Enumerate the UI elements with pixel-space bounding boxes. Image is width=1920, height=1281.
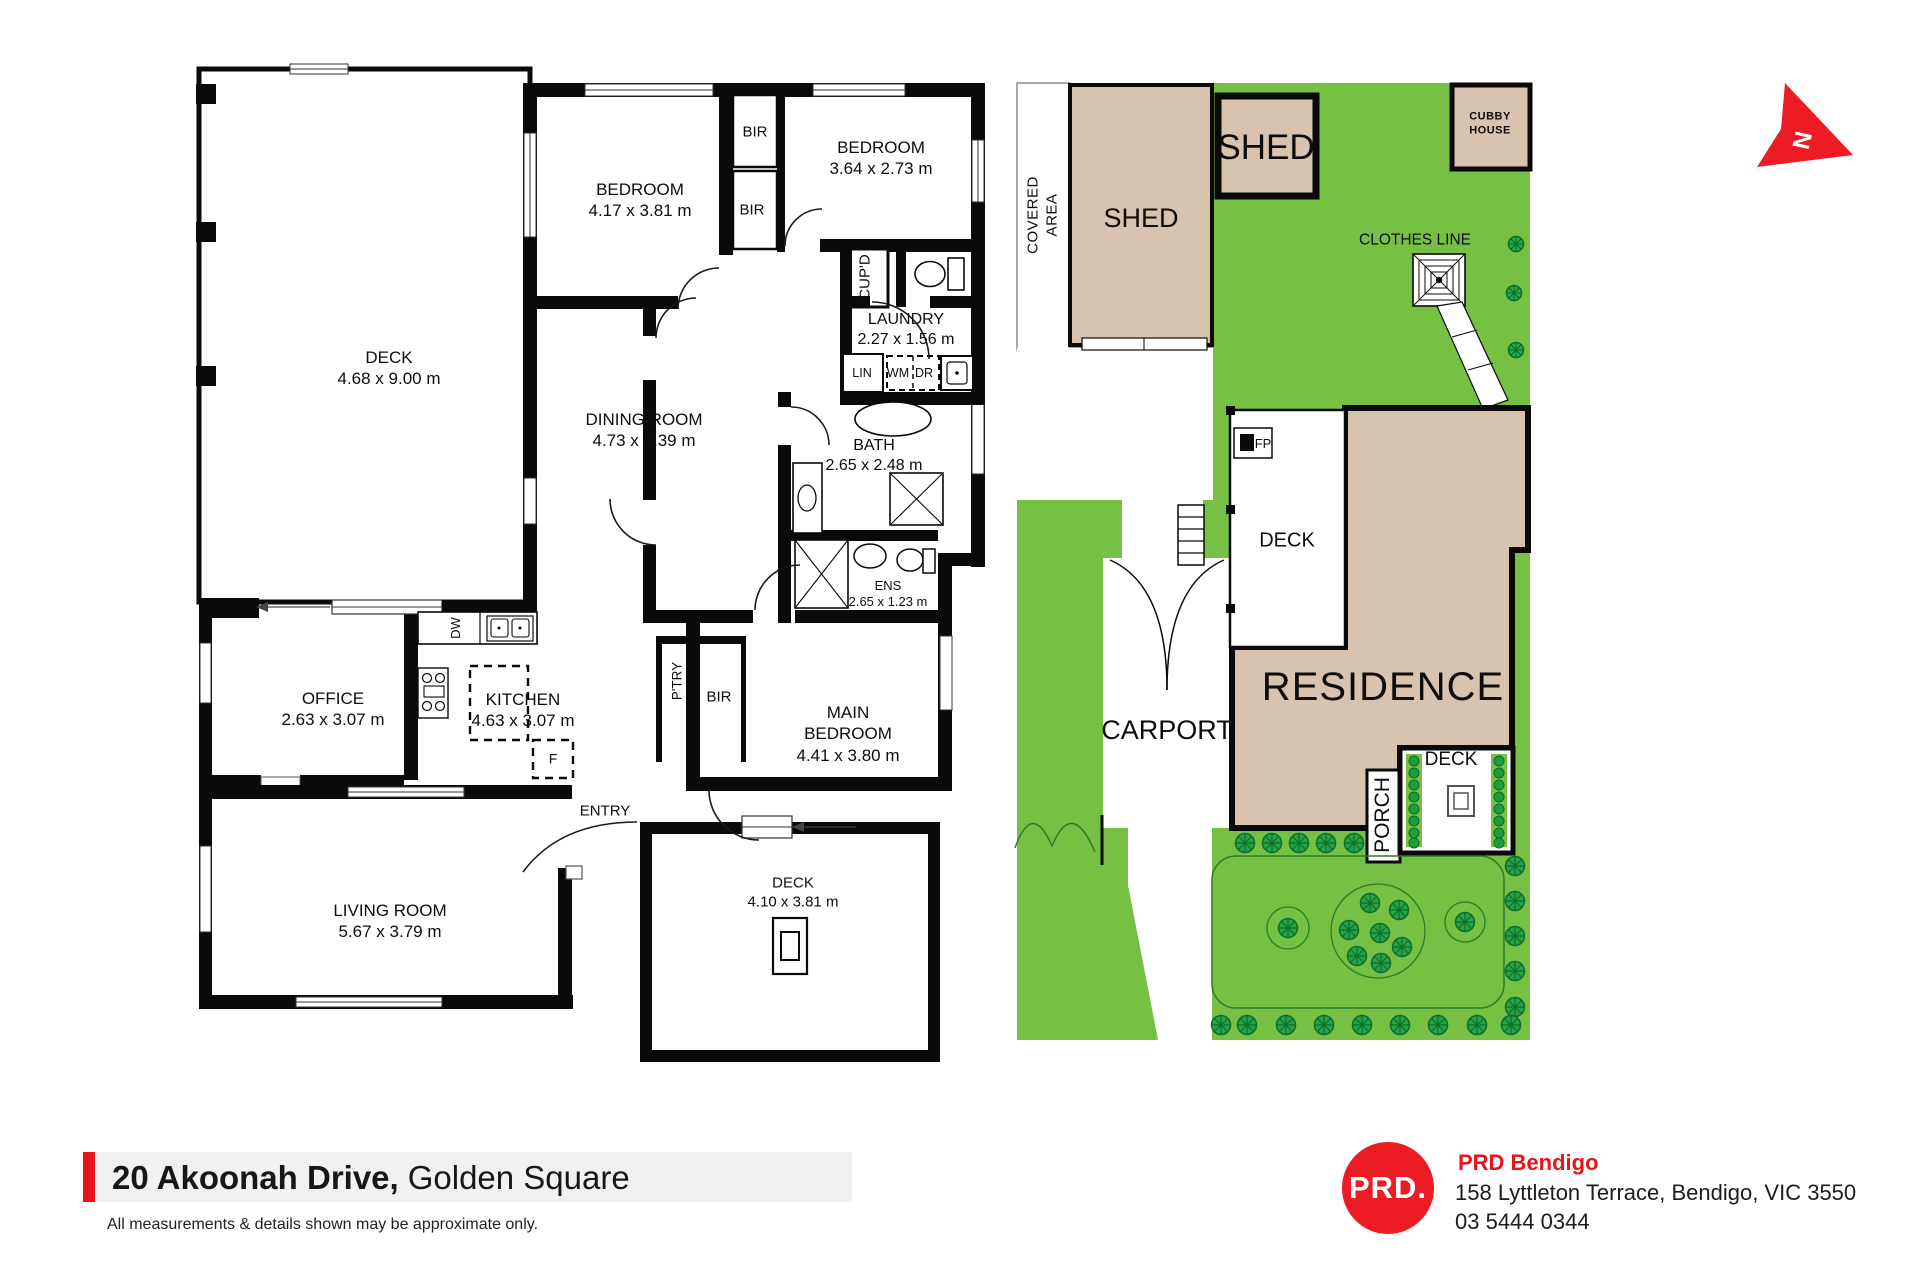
- north-arrow-icon: [1757, 83, 1853, 167]
- deck-top-outline: [199, 69, 530, 602]
- room-label-deck-bottom: DECK 4.10 x 3.81 m: [748, 874, 839, 912]
- deck-upper-label: DECK: [1259, 529, 1315, 554]
- clothes-line-icon: [1413, 254, 1465, 306]
- disclaimer-text: All measurements & details shown may be …: [107, 1216, 538, 1234]
- room-label-bath: BATH 2.65 x 2.48 m: [826, 436, 923, 476]
- prd-logo: PRD.: [1342, 1142, 1434, 1234]
- address-street: 20 Akoonah Drive,: [112, 1159, 399, 1196]
- agency-name: PRD Bendigo: [1458, 1150, 1599, 1176]
- residence-label: RESIDENCE: [1262, 662, 1504, 712]
- fireplace-icon: [1240, 434, 1254, 451]
- washing-machine-label: WM: [887, 366, 909, 382]
- deck-table-icon: [1448, 786, 1474, 816]
- shower-icon: [795, 540, 848, 608]
- fridge-label: F: [549, 750, 558, 768]
- plan-drawing: N: [0, 0, 1920, 1281]
- dryer-label: DR: [915, 366, 933, 382]
- room-label-deck-top: DECK 4.68 x 9.00 m: [337, 347, 440, 390]
- cupboard-label: CUP'D: [857, 254, 876, 299]
- bathtub-icon: [855, 402, 931, 436]
- deck-lower-label: DECK: [1425, 748, 1478, 772]
- room-label-office: OFFICE 2.63 x 3.07 m: [281, 688, 384, 731]
- prd-logo-text: PRD.: [1349, 1170, 1427, 1206]
- property-address: 20 Akoonah Drive,Golden Square: [112, 1159, 630, 1197]
- shed-large-label: SHED: [1103, 202, 1178, 236]
- agency-phone: 03 5444 0344: [1455, 1209, 1590, 1235]
- clothes-line-label: CLOTHES LINE: [1359, 230, 1471, 249]
- bir-label: BIR: [742, 124, 767, 143]
- porch-label: PORCH: [1370, 777, 1396, 853]
- linen-label: LIN: [852, 366, 871, 382]
- room-label-bedroom-2: BEDROOM 3.64 x 2.73 m: [829, 137, 932, 180]
- shed-small-label: SHED: [1217, 126, 1314, 170]
- room-label-kitchen: KITCHEN 4.63 x 3.07 m: [471, 689, 574, 732]
- room-label-living: LIVING ROOM 5.67 x 3.79 m: [333, 900, 446, 943]
- room-label-bedroom-1: BEDROOM 4.17 x 3.81 m: [588, 179, 691, 222]
- agency-address: 158 Lyttleton Terrace, Bendigo, VIC 3550: [1455, 1180, 1856, 1206]
- dishwasher-label: DW: [448, 617, 464, 639]
- entry-label: ENTRY: [580, 803, 631, 822]
- toilet-icon: [897, 549, 935, 573]
- carport-label: CARPORT: [1101, 714, 1233, 748]
- footer-accent-bar: [83, 1152, 95, 1202]
- cooktop-icon: [418, 668, 448, 718]
- site-plan: [1015, 83, 1530, 1040]
- bir-label: BIR: [706, 689, 731, 708]
- room-label-main-bedroom: MAIN BEDROOM 4.41 x 3.80 m: [796, 702, 899, 766]
- pantry-label: P'TRY: [670, 662, 687, 700]
- bir-label: BIR: [739, 202, 764, 221]
- deck-table-icon: [773, 918, 807, 974]
- shower-icon: [890, 473, 943, 525]
- cubby-house-label: CUBBY HOUSE: [1469, 110, 1511, 138]
- floorplan-page: N DECK 4.68 x 9.00 m BEDROOM 4.17 x 3.81…: [0, 0, 1920, 1281]
- patio: [1017, 348, 1213, 500]
- room-label-laundry: LAUNDRY 2.27 x 1.56 m: [858, 310, 955, 350]
- covered-area-label: COVERED AREA: [1024, 176, 1062, 254]
- north-arrow: N: [1757, 83, 1853, 167]
- address-suburb: Golden Square: [408, 1159, 630, 1196]
- stairs-icon: [1178, 505, 1204, 565]
- fireplace-label: FP: [1255, 436, 1272, 452]
- toilet-icon: [915, 258, 964, 290]
- carport-area: [1103, 558, 1232, 828]
- basin-icon: [854, 544, 886, 568]
- room-label-dining: DINING ROOM 4.73 x 5.39 m: [585, 409, 702, 452]
- room-label-ensuite: ENS 2.65 x 1.23 m: [849, 578, 928, 611]
